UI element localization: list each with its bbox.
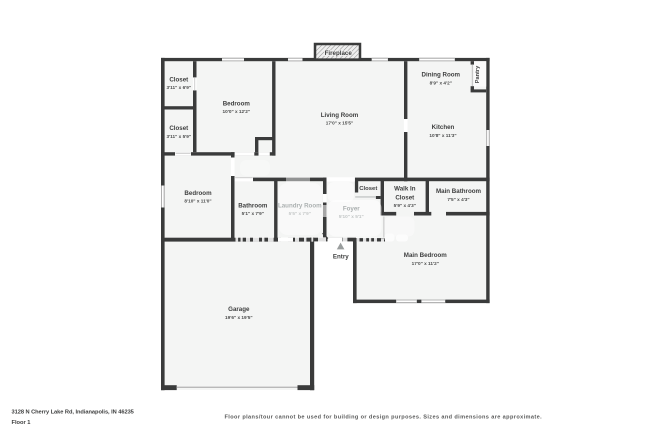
svg-text:5'5" x 7'9": 5'5" x 7'9" [289, 211, 311, 216]
svg-text:5'9" x 4'3": 5'9" x 4'3" [394, 203, 416, 208]
svg-text:Foyer: Foyer [343, 206, 360, 213]
svg-text:Closet: Closet [169, 77, 188, 84]
svg-text:Dining Room: Dining Room [422, 72, 461, 79]
svg-text:Bedroom: Bedroom [223, 100, 251, 107]
svg-text:3128 N Cherry Lake Rd, Indiana: 3128 N Cherry Lake Rd, Indianapolis, IN … [12, 410, 134, 416]
svg-text:Closet: Closet [169, 125, 188, 132]
svg-text:17'0" x 15'5": 17'0" x 15'5" [326, 121, 354, 126]
svg-text:3'11" x 6'9": 3'11" x 6'9" [166, 85, 191, 90]
svg-text:Main Bedroom: Main Bedroom [404, 252, 447, 259]
svg-text:Closet: Closet [359, 186, 377, 192]
svg-text:5'10" x 5'1": 5'10" x 5'1" [339, 214, 364, 219]
svg-text:19'6" x 19'5": 19'6" x 19'5" [225, 315, 253, 320]
svg-text:Entry: Entry [333, 253, 349, 260]
svg-text:Closet: Closet [395, 194, 414, 201]
svg-text:Kitchen: Kitchen [432, 124, 455, 131]
svg-text:Fireplace: Fireplace [325, 50, 353, 57]
svg-text:Main Bathroom: Main Bathroom [436, 188, 482, 195]
svg-text:5'1" x 7'9": 5'1" x 7'9" [242, 211, 264, 216]
svg-text:8'9" x 4'2": 8'9" x 4'2" [430, 80, 452, 85]
svg-text:Living Room: Living Room [321, 112, 359, 119]
svg-text:8'10" x 11'0": 8'10" x 11'0" [184, 199, 211, 204]
svg-text:Pantry: Pantry [475, 65, 481, 83]
svg-text:Garage: Garage [228, 306, 250, 313]
svg-text:7'5" x 4'3": 7'5" x 4'3" [447, 197, 469, 202]
svg-text:Bathroom: Bathroom [238, 202, 268, 209]
svg-text:17'0" x 11'2": 17'0" x 11'2" [412, 261, 439, 266]
svg-text:10'0" x 12'2": 10'0" x 12'2" [223, 109, 251, 114]
svg-text:Bedroom: Bedroom [184, 190, 212, 197]
svg-text:Walk In: Walk In [394, 186, 416, 193]
svg-text:3'11" x 5'9": 3'11" x 5'9" [166, 134, 191, 139]
svg-text:Floor 1: Floor 1 [12, 420, 31, 426]
svg-text:10'8" x 11'3": 10'8" x 11'3" [429, 133, 456, 138]
svg-text:Floor plans/tour cannot be use: Floor plans/tour cannot be used for buil… [225, 415, 543, 421]
svg-text:Laundry Room: Laundry Room [278, 202, 322, 209]
